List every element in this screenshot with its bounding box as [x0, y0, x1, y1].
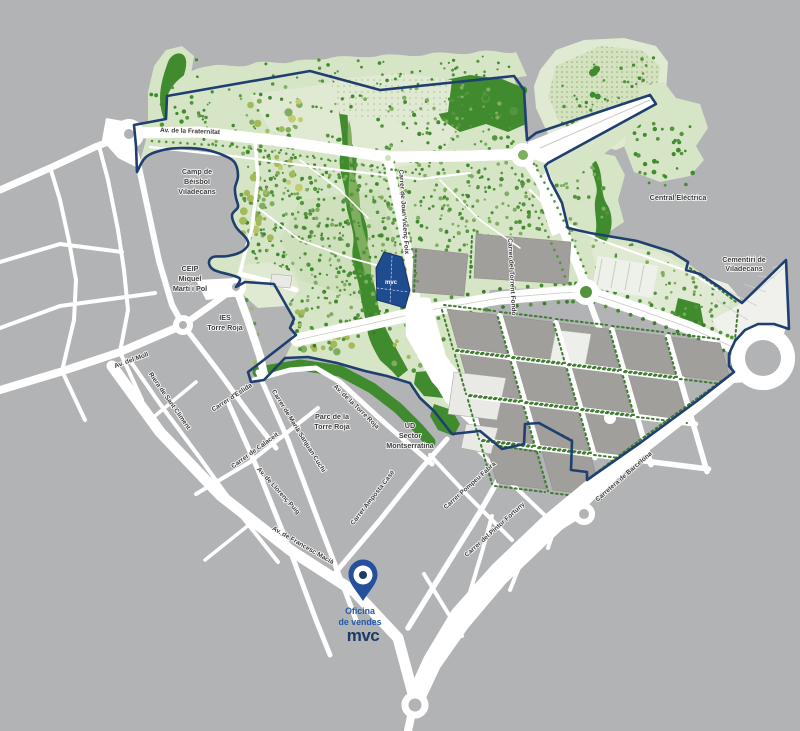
- svg-text:Cementiri de: Cementiri de: [722, 255, 766, 264]
- svg-text:Miquel: Miquel: [179, 274, 202, 283]
- svg-text:Viladecans: Viladecans: [178, 187, 215, 196]
- svg-text:Torre Roja: Torre Roja: [207, 323, 243, 332]
- svg-text:Viladecans: Viladecans: [725, 264, 762, 273]
- svg-text:IES: IES: [219, 313, 231, 322]
- svg-text:Central Elèctrica: Central Elèctrica: [650, 193, 708, 202]
- svg-text:Camp de: Camp de: [182, 167, 212, 176]
- svg-text:Bèisbol: Bèisbol: [184, 177, 210, 186]
- svg-text:CEIP: CEIP: [182, 264, 199, 273]
- svg-text:mvc: mvc: [347, 626, 380, 645]
- svg-text:Oficina: Oficina: [345, 606, 375, 616]
- svg-text:Torre Roja: Torre Roja: [314, 422, 350, 431]
- svg-text:Parc de la: Parc de la: [315, 412, 350, 421]
- svg-text:Montserratina: Montserratina: [386, 441, 435, 450]
- svg-text:mvc: mvc: [385, 280, 398, 286]
- svg-text:Sector: Sector: [399, 431, 422, 440]
- svg-text:UD: UD: [405, 421, 415, 430]
- svg-text:Martí i Pol: Martí i Pol: [173, 284, 207, 293]
